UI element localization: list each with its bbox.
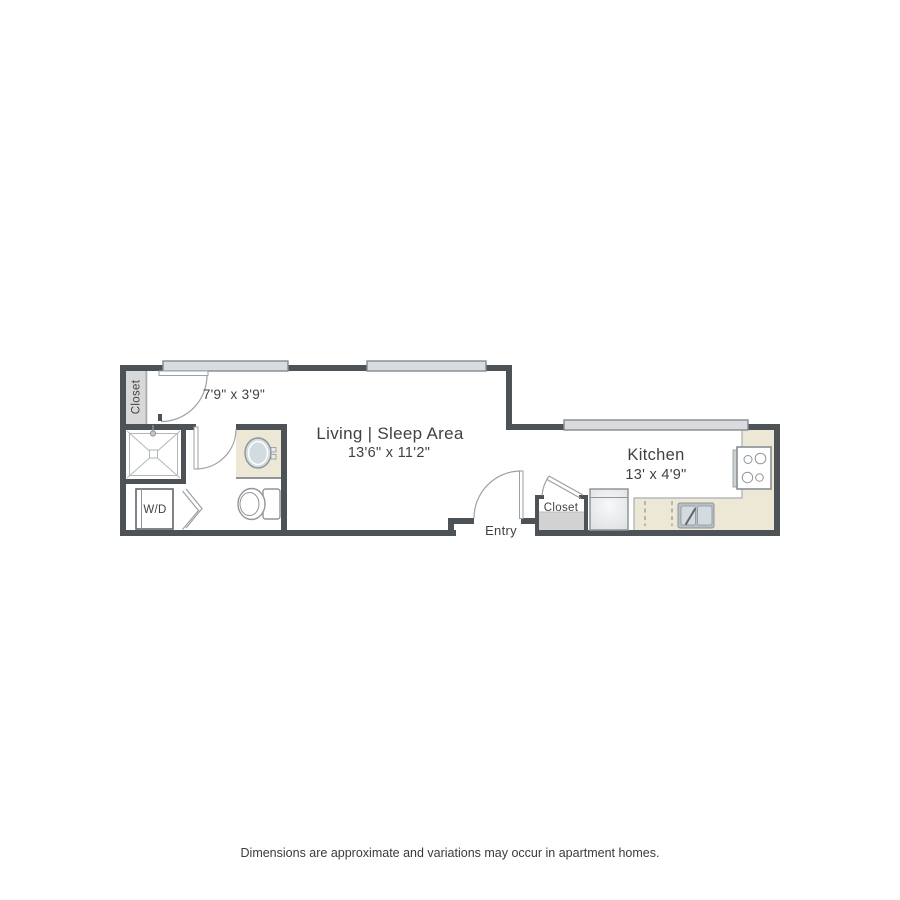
bath-closet-door xyxy=(158,371,208,422)
window-icon-top-middle xyxy=(367,361,486,371)
entry-door xyxy=(474,471,523,519)
door-swing-arc xyxy=(474,471,521,518)
entry-closet-label: Closet xyxy=(544,502,579,514)
wall-entry-closet-left xyxy=(535,495,539,536)
closet-shelf xyxy=(539,512,584,530)
faucet-handle xyxy=(271,455,276,460)
wall-left xyxy=(120,365,126,536)
stove-body xyxy=(737,447,771,489)
kitchen-sink xyxy=(678,503,714,528)
kitchen-label: Kitchen xyxy=(627,446,684,464)
bathroom-door xyxy=(194,427,236,469)
shower xyxy=(127,425,180,478)
stove xyxy=(733,447,771,489)
disclaimer-text: Dimensions are approximate and variation… xyxy=(0,846,900,860)
entry-label: Entry xyxy=(485,523,517,538)
wall-shower-bottom xyxy=(126,479,186,484)
washer-dryer-label: W/D xyxy=(143,504,166,516)
wall-bottom-living xyxy=(120,530,456,536)
shower-drain xyxy=(150,450,158,458)
closet-door-arc xyxy=(542,476,549,496)
bathroom-closet-label: Closet xyxy=(131,379,143,414)
kitchen-dimensions: 13' x 4'9" xyxy=(625,467,686,483)
wall-bath-right xyxy=(281,424,287,536)
toilet xyxy=(238,489,280,520)
bifold-door xyxy=(183,489,203,530)
floorplan-page: Living | Sleep Area 13'6" x 11'2" Kitche… xyxy=(0,0,900,900)
wall-right xyxy=(774,424,780,536)
wall-vanity-top xyxy=(236,424,281,430)
door-stop xyxy=(158,414,162,421)
wall-bottom-kitchen xyxy=(535,530,780,536)
living-area-dimensions: 13'6" x 11'2" xyxy=(348,445,430,461)
sink-basin-right xyxy=(698,506,713,525)
closet-door-leaf xyxy=(547,476,583,499)
door-swing-arc xyxy=(161,376,207,422)
window-icon-kitchen xyxy=(564,420,748,430)
vanity-edge xyxy=(236,477,281,479)
faucet-icon xyxy=(271,448,276,453)
refrigerator-box xyxy=(590,489,628,530)
door-swing-arc xyxy=(196,430,236,470)
door-leaf xyxy=(159,371,208,376)
floorplan-drawing: Living | Sleep Area 13'6" x 11'2" Kitche… xyxy=(0,0,900,900)
wall-step xyxy=(506,365,512,430)
refrigerator xyxy=(590,489,628,530)
bath-closet-edge xyxy=(146,371,148,424)
window-icon-top-left xyxy=(163,361,288,371)
bathroom-dimensions: 7'9" x 3'9" xyxy=(203,387,265,402)
living-area-label: Living | Sleep Area xyxy=(316,424,463,443)
wall-entry-closet-stub-left xyxy=(535,495,544,499)
wall-entry-closet-right xyxy=(584,495,588,536)
door-leaf xyxy=(194,427,198,469)
shower-head-icon xyxy=(150,431,155,436)
wall-entry-step xyxy=(448,518,454,536)
wall-shower-right xyxy=(181,429,186,484)
door-leaf xyxy=(520,471,524,519)
